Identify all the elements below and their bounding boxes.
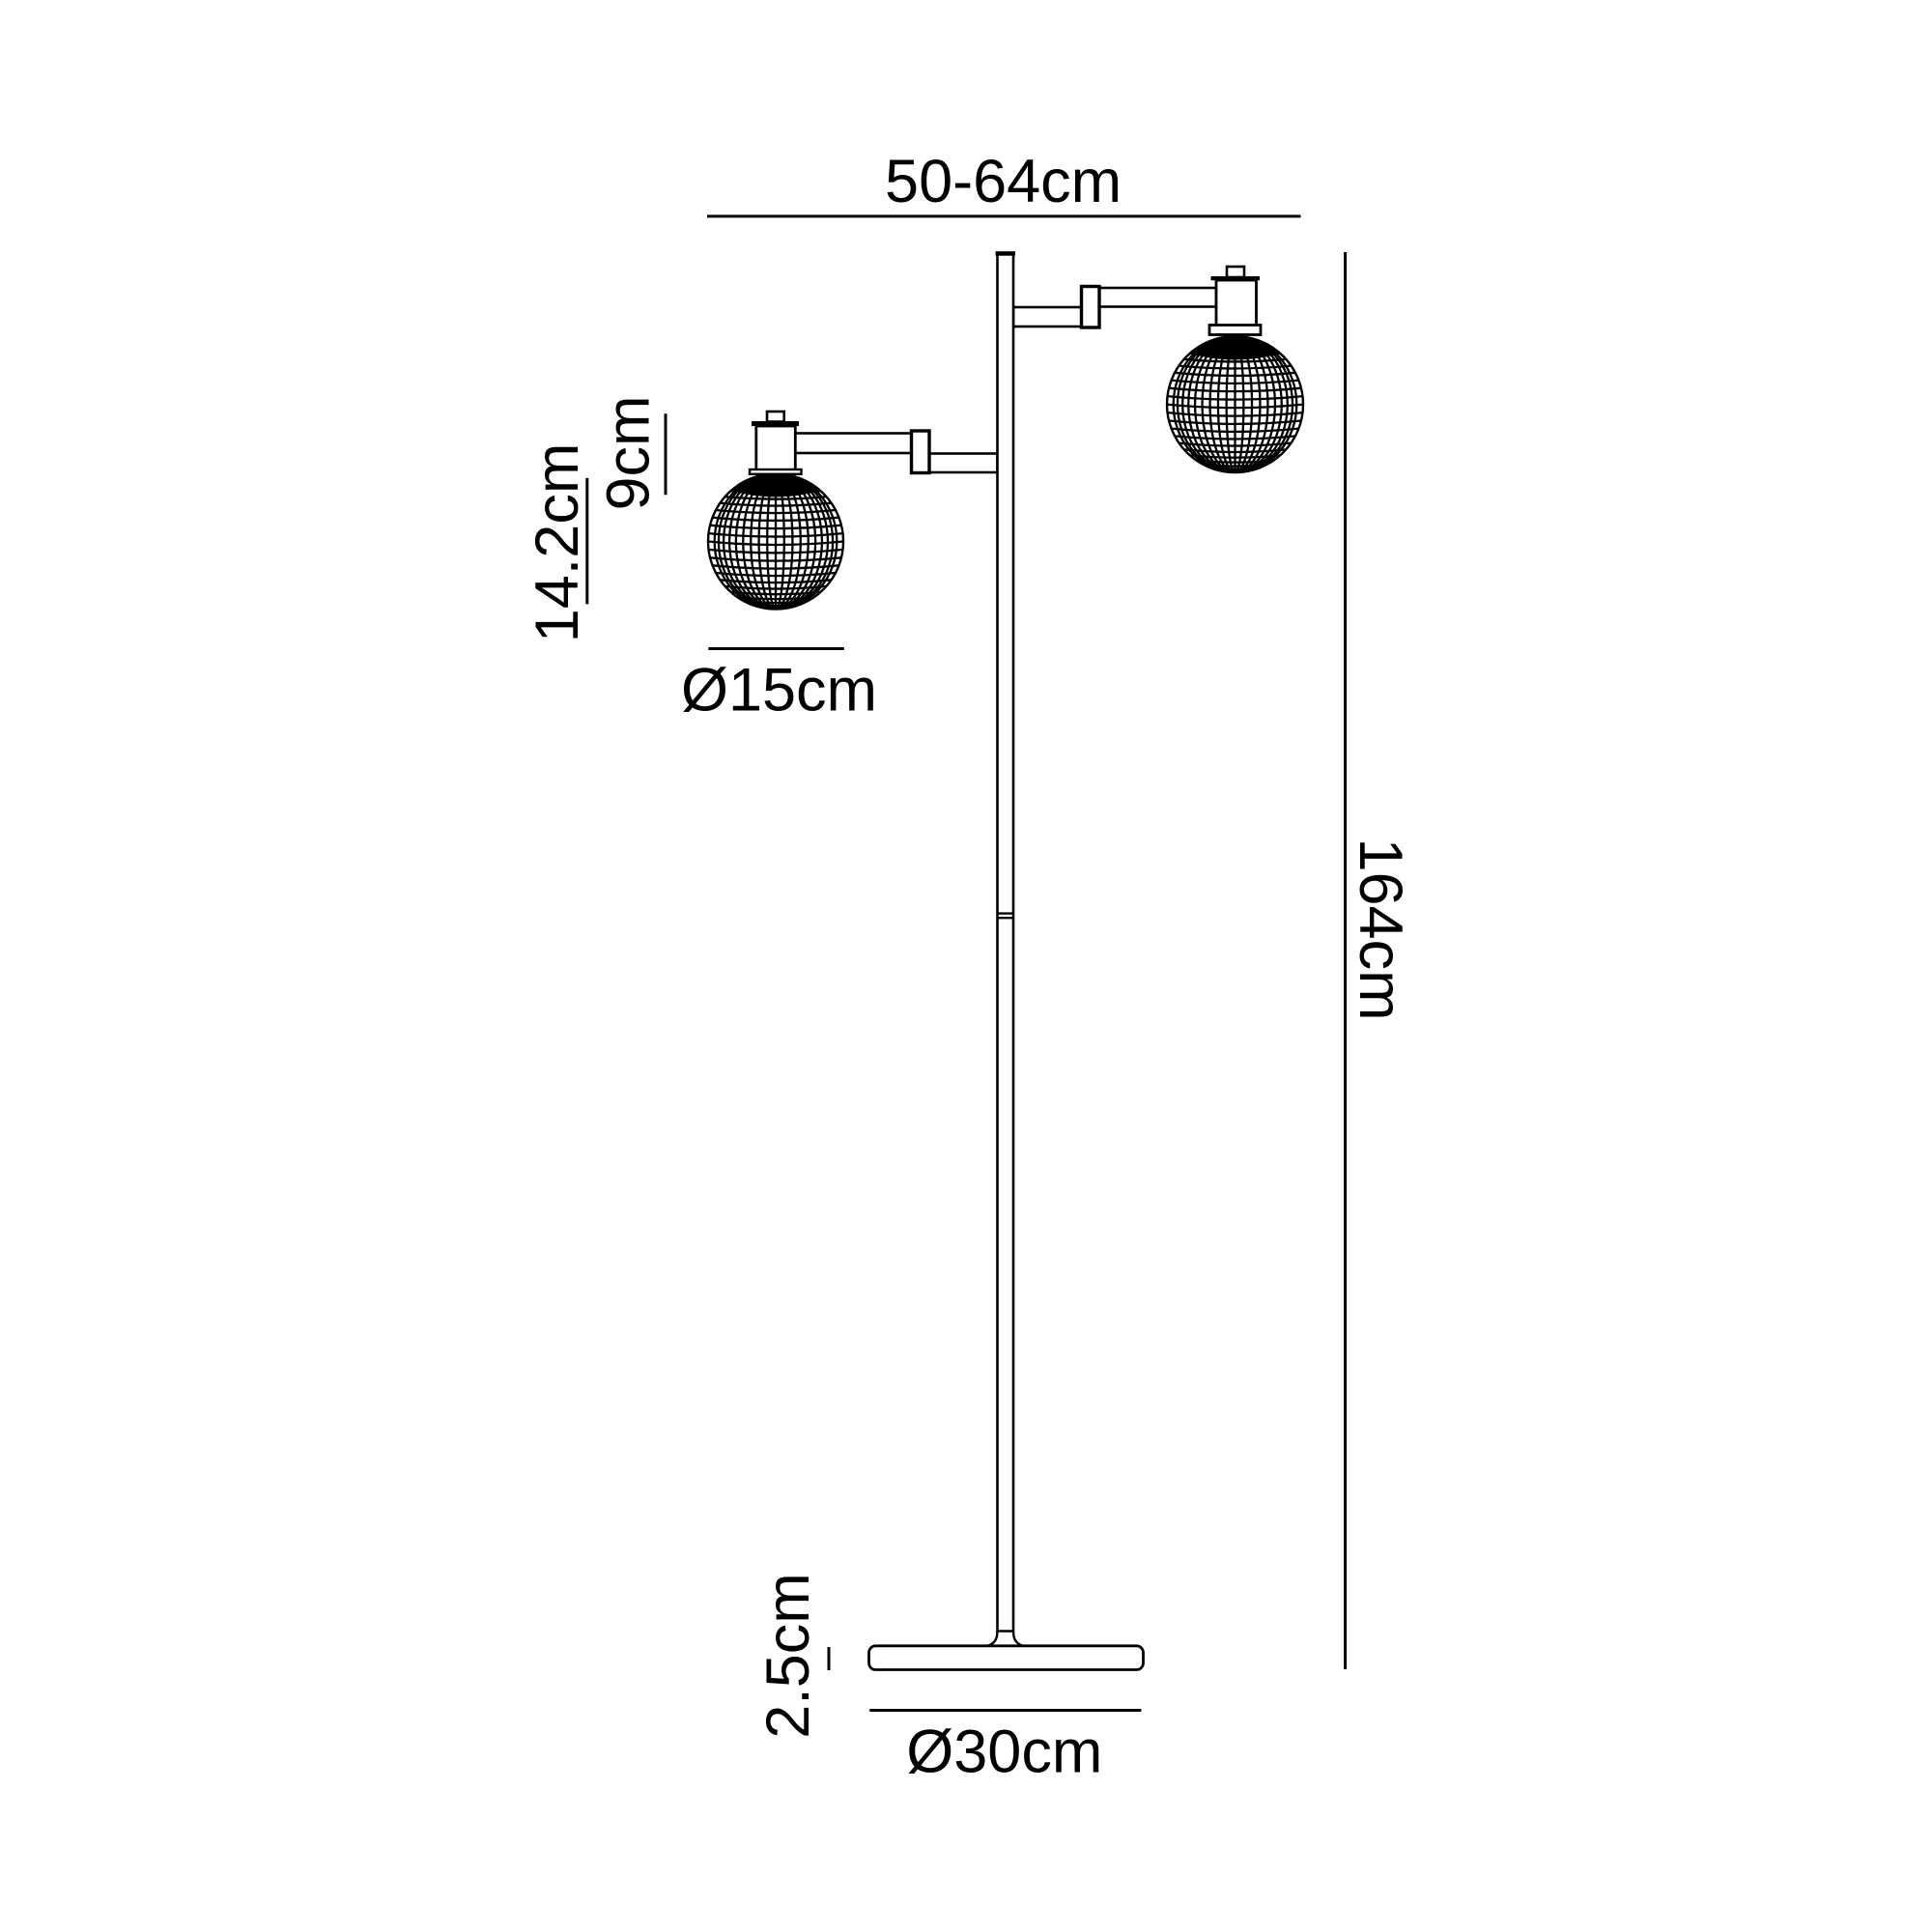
svg-text:14.2cm: 14.2cm xyxy=(524,443,591,643)
svg-text:50-64cm: 50-64cm xyxy=(885,148,1122,215)
svg-text:164cm: 164cm xyxy=(1347,838,1414,1020)
svg-text:2.5cm: 2.5cm xyxy=(754,1573,822,1739)
svg-text:Ø30cm: Ø30cm xyxy=(906,1719,1102,1786)
svg-text:9cm: 9cm xyxy=(595,395,663,510)
svg-text:Ø15cm: Ø15cm xyxy=(681,657,877,724)
